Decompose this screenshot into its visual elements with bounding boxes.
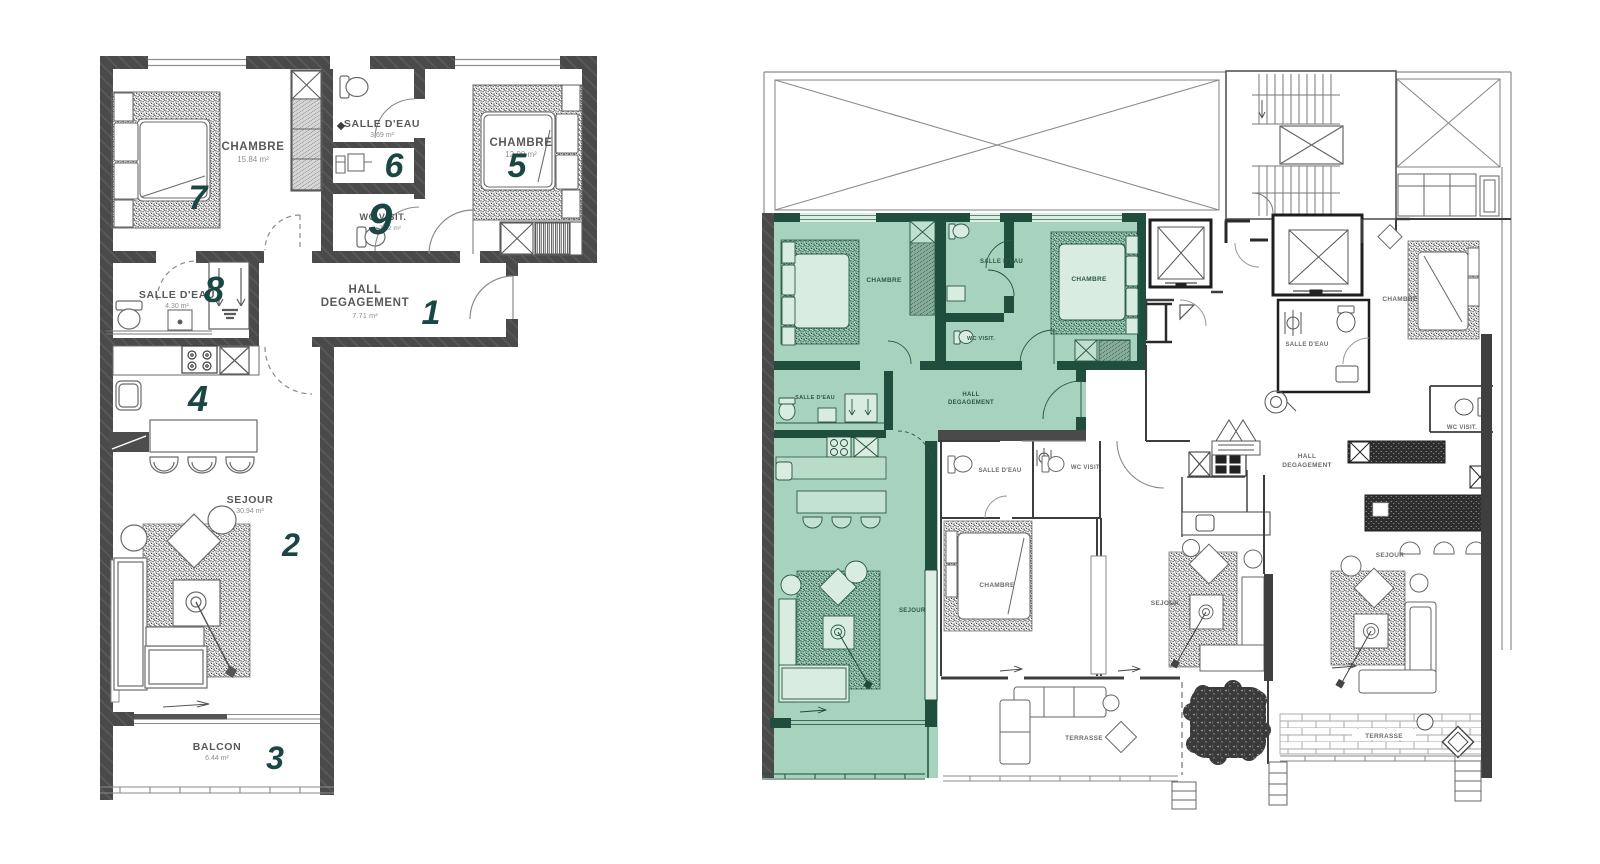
svg-text:HALL: HALL <box>1298 453 1317 460</box>
svg-text:CHAMBRE: CHAMBRE <box>979 582 1015 589</box>
svg-text:SEJOUR: SEJOUR <box>899 608 926 614</box>
svg-text:BALCON: BALCON <box>193 741 242 753</box>
svg-text:CHAMBRE: CHAMBRE <box>866 277 902 284</box>
svg-text:1: 1 <box>422 294 441 332</box>
svg-text:CHAMBRE: CHAMBRE <box>222 141 285 153</box>
svg-text:HALL: HALL <box>962 392 979 398</box>
svg-text:WC VISIT.: WC VISIT. <box>1071 465 1101 471</box>
svg-text:30.94 m²: 30.94 m² <box>236 508 264 515</box>
svg-text:DEGAGEMENT: DEGAGEMENT <box>1282 462 1332 469</box>
svg-text:15.84 m²: 15.84 m² <box>237 155 269 164</box>
svg-text:2: 2 <box>281 527 300 563</box>
svg-text:SEJOUR: SEJOUR <box>1376 552 1405 559</box>
svg-text:DEGAGEMENT: DEGAGEMENT <box>321 297 409 309</box>
svg-text:8: 8 <box>204 269 224 310</box>
svg-text:3: 3 <box>266 740 284 776</box>
svg-text:SALLE D'EAU: SALLE D'EAU <box>344 118 420 130</box>
svg-text:6.44 m²: 6.44 m² <box>205 755 229 762</box>
svg-text:SEJOUR: SEJOUR <box>227 494 274 506</box>
svg-text:5: 5 <box>508 147 528 185</box>
svg-text:7: 7 <box>189 179 210 217</box>
svg-text:TERRASSE: TERRASSE <box>1065 735 1103 742</box>
svg-text:4: 4 <box>187 378 208 419</box>
svg-text:SEJOUR: SEJOUR <box>1151 600 1180 607</box>
svg-text:SALLE D'EAU: SALLE D'EAU <box>1285 342 1328 348</box>
svg-text:WC VISIT.: WC VISIT. <box>1447 425 1477 431</box>
svg-text:HALL: HALL <box>348 284 381 296</box>
svg-text:7.71 m²: 7.71 m² <box>352 311 378 320</box>
svg-text:4.30 m²: 4.30 m² <box>165 303 189 310</box>
svg-text:DEGAGEMENT: DEGAGEMENT <box>948 400 994 406</box>
svg-text:WC VISIT.: WC VISIT. <box>967 336 995 342</box>
svg-text:TERRASSE: TERRASSE <box>1365 733 1403 740</box>
svg-text:CHAMBRE: CHAMBRE <box>1071 276 1107 283</box>
svg-text:SALLE D'EAU: SALLE D'EAU <box>980 259 1023 265</box>
svg-text:3.69 m²: 3.69 m² <box>370 132 394 139</box>
svg-text:9: 9 <box>368 195 393 244</box>
svg-text:SALLE D'EAU: SALLE D'EAU <box>978 468 1021 474</box>
svg-text:6: 6 <box>385 147 405 185</box>
svg-text:SALLE D'EAU: SALLE D'EAU <box>795 395 835 401</box>
